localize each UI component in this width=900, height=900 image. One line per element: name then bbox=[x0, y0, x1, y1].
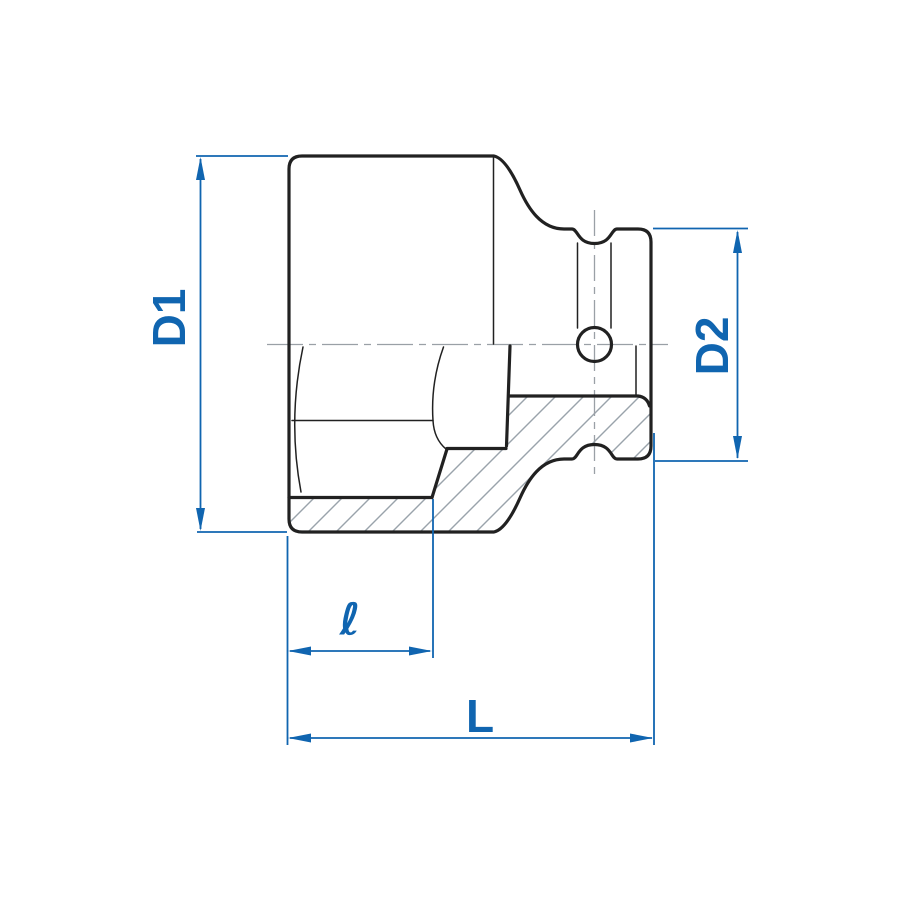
d1-arrow-up-icon bbox=[196, 157, 205, 180]
technical-drawing-canvas: D1 D2 ℓ L bbox=[0, 0, 900, 900]
d2-arrow-up-icon bbox=[733, 230, 742, 253]
d2-arrow-down-icon bbox=[733, 436, 742, 459]
dim-label-hex-depth: ℓ bbox=[339, 595, 361, 646]
dim-label-d2: D2 bbox=[686, 317, 738, 376]
hex-end-corner-curve bbox=[433, 347, 446, 449]
l-arrow-right-icon bbox=[409, 647, 432, 656]
L-arrow-left-icon bbox=[288, 734, 311, 743]
section-hatching bbox=[289, 396, 651, 532]
d1-arrow-down-icon bbox=[196, 508, 205, 531]
l-arrow-left-icon bbox=[288, 647, 311, 656]
socket-dimension-diagram: D1 D2 ℓ L bbox=[0, 0, 900, 900]
dimension-hex-depth: ℓ bbox=[288, 499, 434, 745]
dim-label-total-length: L bbox=[466, 690, 494, 742]
dim-label-d1: D1 bbox=[143, 289, 195, 348]
dimension-d1: D1 bbox=[143, 156, 288, 532]
hex-entry-chamfer-curve bbox=[295, 347, 303, 492]
L-arrow-right-icon bbox=[630, 734, 653, 743]
